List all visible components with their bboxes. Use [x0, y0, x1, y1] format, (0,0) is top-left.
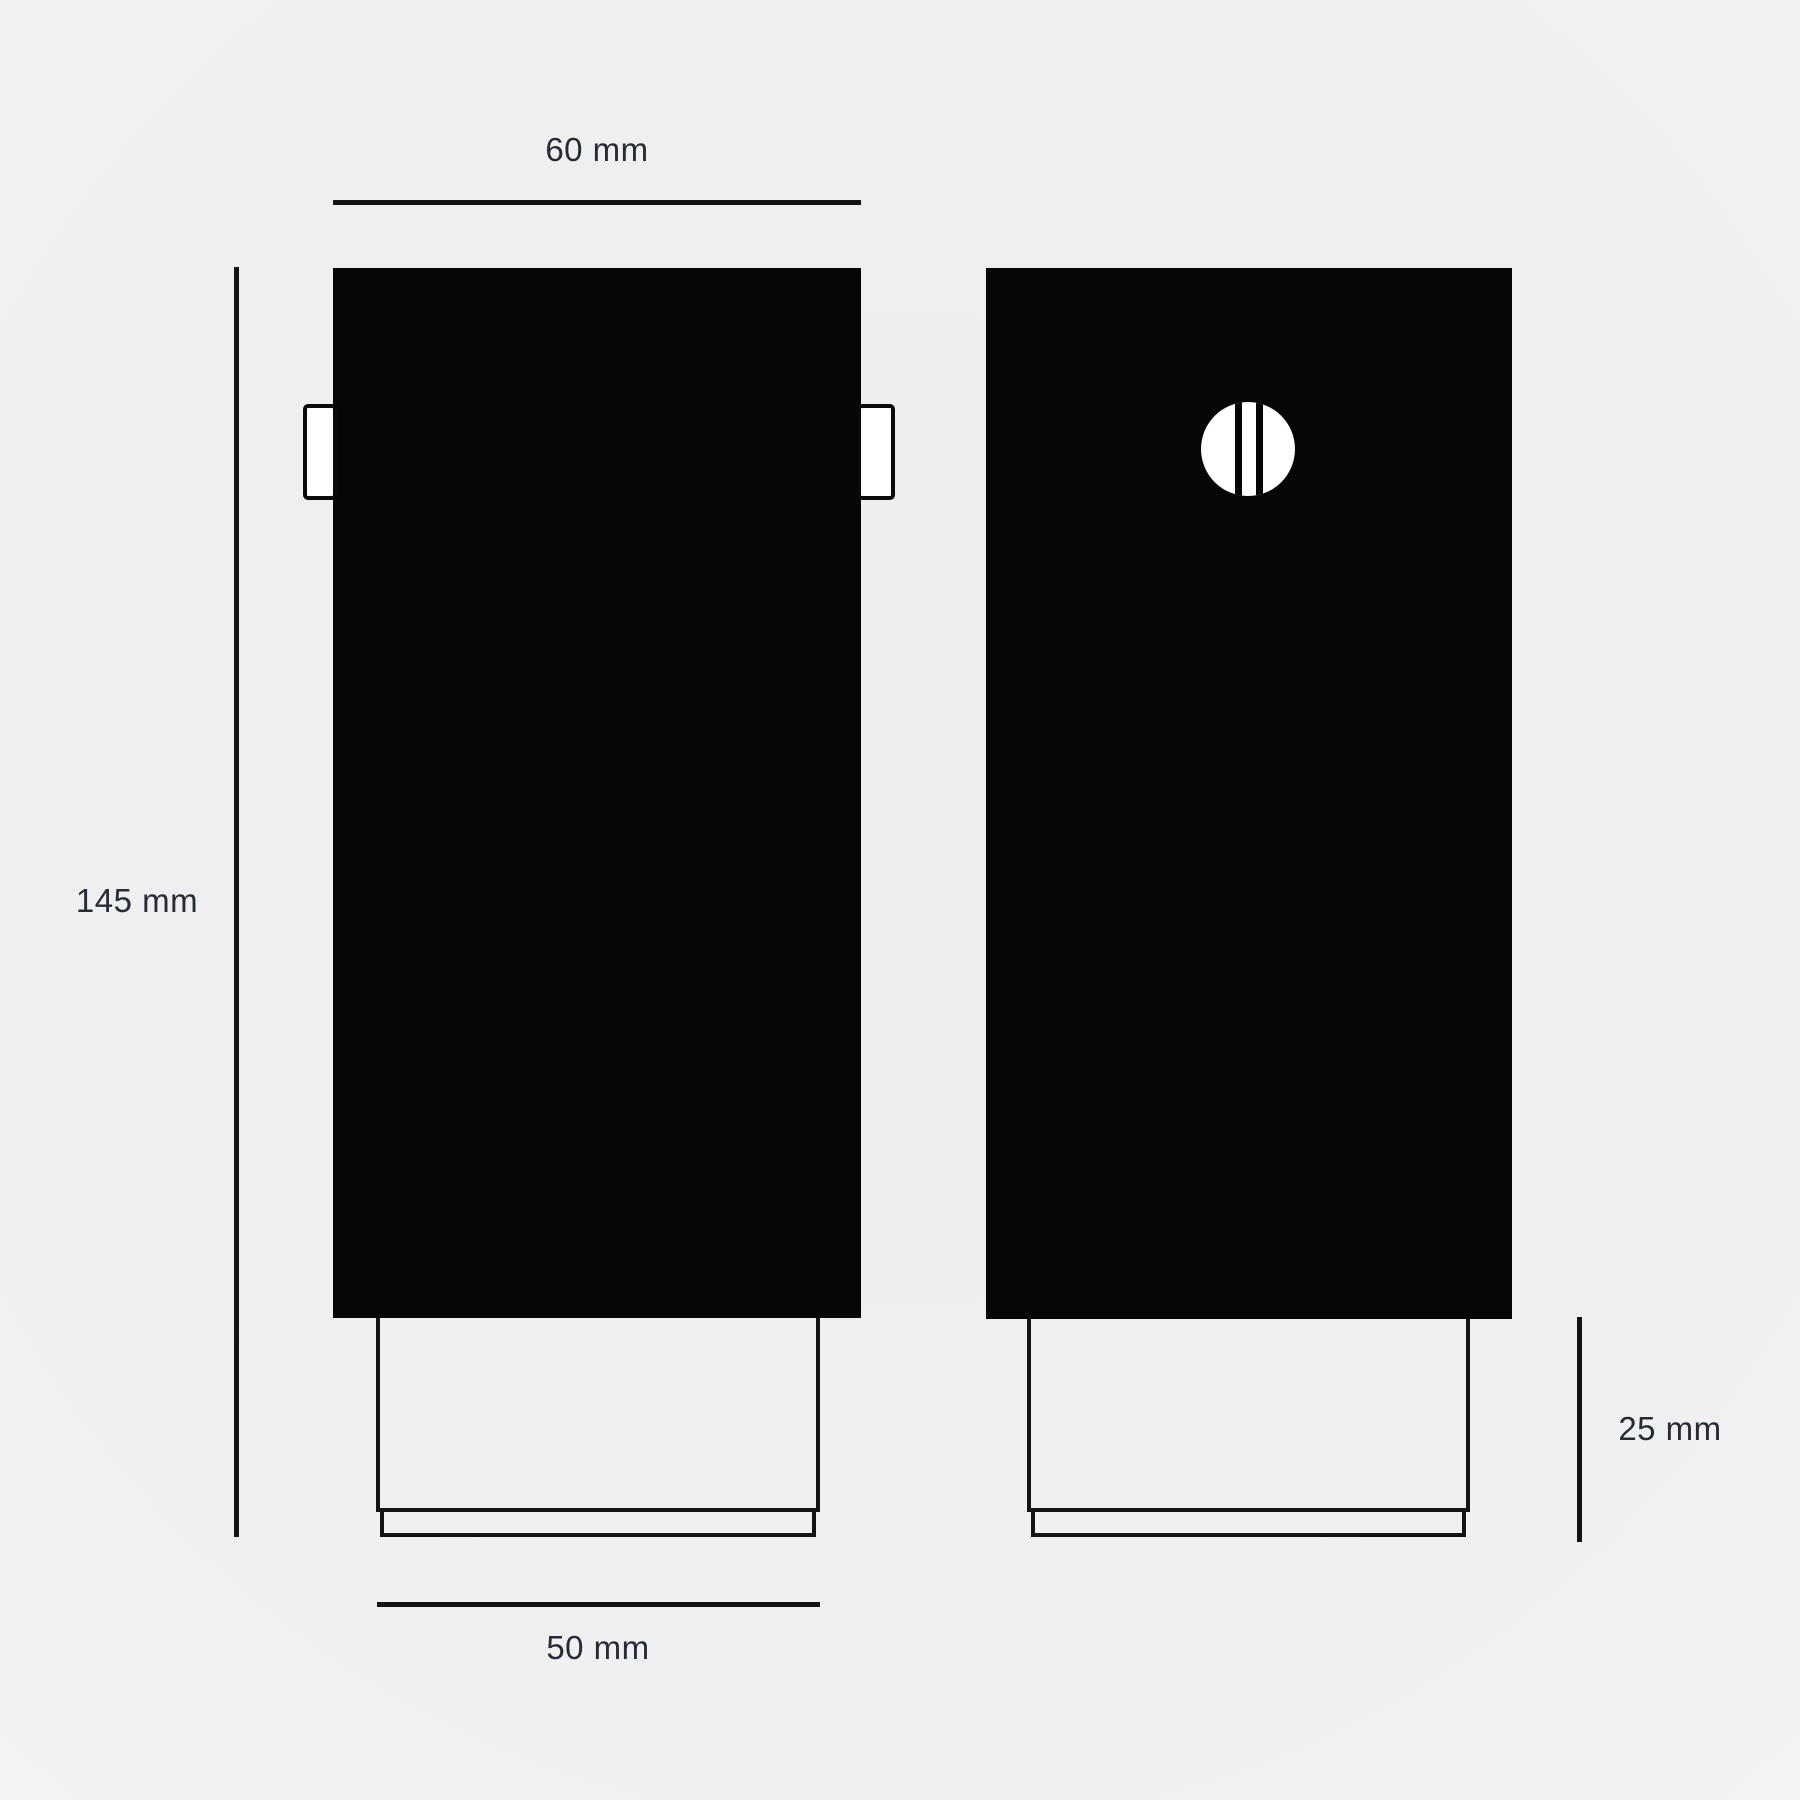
side-base-pedestal: [1027, 1319, 1470, 1512]
dimension-label-right-height: 25 mm: [1570, 1410, 1770, 1448]
front-base-foot: [380, 1512, 816, 1537]
front-base-pedestal: [376, 1318, 820, 1512]
left-side-tab: [303, 404, 337, 500]
knob-icon: [1201, 402, 1295, 496]
side-base-foot: [1031, 1512, 1466, 1537]
dimension-label-top-width: 60 mm: [447, 131, 747, 169]
knob-slot-line: [1235, 402, 1242, 496]
dimension-label-left-height: 145 mm: [37, 882, 237, 920]
knob-slot-line: [1256, 402, 1263, 496]
front-body-rect: [333, 268, 861, 1318]
dimension-line-bottom-width: [377, 1602, 820, 1607]
technical-drawing-canvas: 60 mm 145 mm 50 mm 25 mm: [0, 0, 1800, 1800]
right-side-tab: [857, 404, 895, 500]
dimension-label-bottom-width: 50 mm: [448, 1629, 748, 1667]
dimension-line-top-width: [333, 200, 861, 205]
